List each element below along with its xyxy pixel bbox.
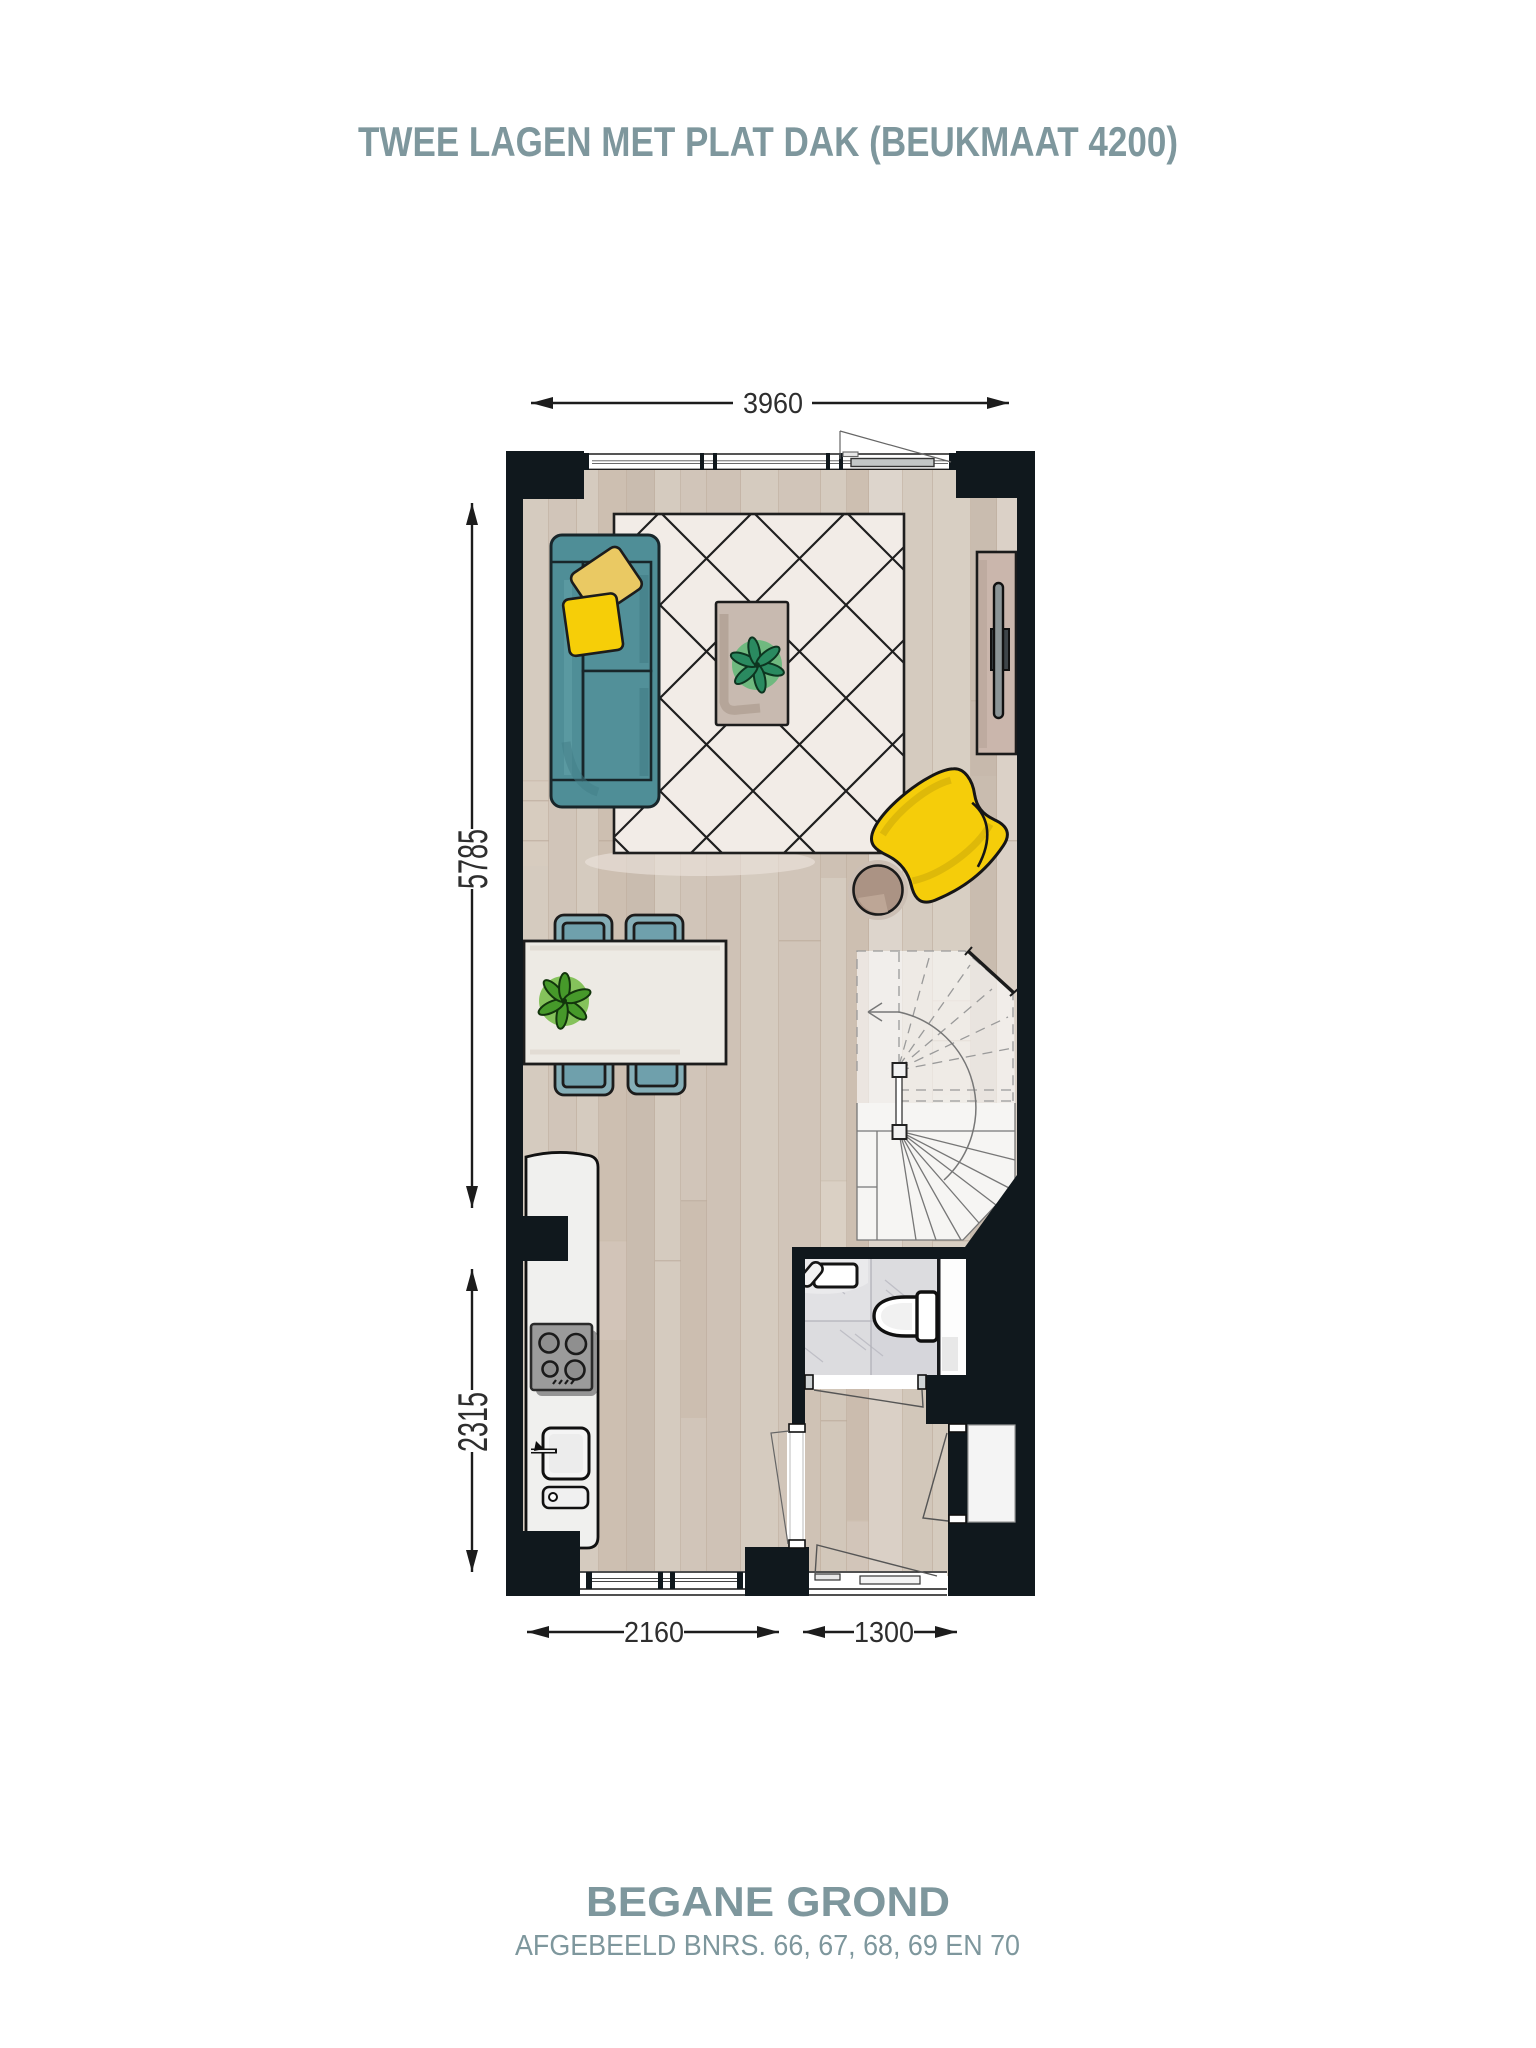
svg-text:2315: 2315 — [449, 1392, 496, 1452]
svg-text:BEGANE GROND: BEGANE GROND — [586, 1878, 950, 1925]
svg-text:AFGEBEELD BNRS. 66, 67, 68, 69: AFGEBEELD BNRS. 66, 67, 68, 69 EN 70 — [515, 1930, 1020, 1962]
svg-text:2160: 2160 — [624, 1617, 684, 1649]
svg-text:5785: 5785 — [449, 829, 496, 889]
svg-text:TWEE LAGEN MET PLAT DAK (BEUKM: TWEE LAGEN MET PLAT DAK (BEUKMAAT 4200) — [358, 118, 1178, 165]
svg-text:3960: 3960 — [743, 388, 803, 420]
svg-text:1300: 1300 — [854, 1617, 914, 1649]
